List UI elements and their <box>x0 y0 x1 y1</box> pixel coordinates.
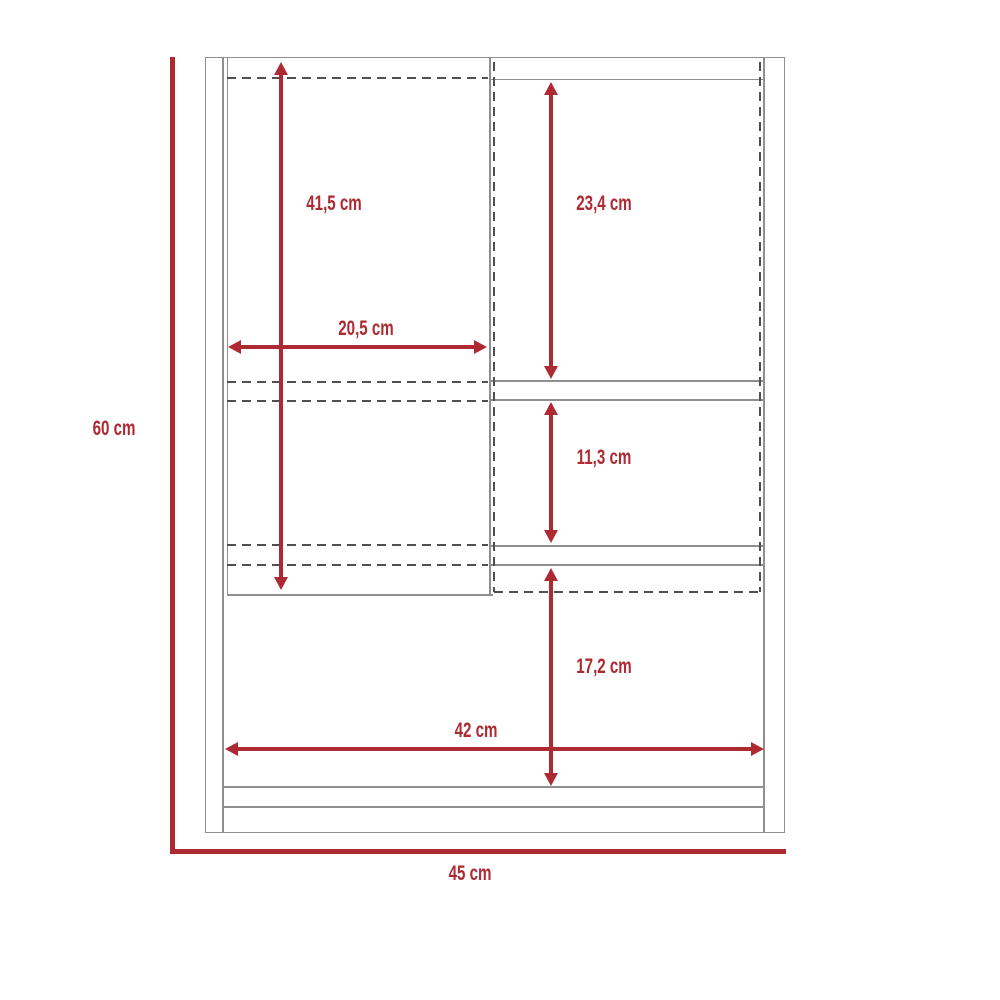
cabinet-left-panel-line <box>222 57 224 833</box>
hidden-left-shelf-2-bottom-line <box>227 564 488 566</box>
center-divider-line <box>489 57 491 595</box>
right-shelf-1-bottom-line <box>490 399 764 401</box>
hidden-right-door-left-edge-line <box>493 62 495 592</box>
dim-label-overall-height: 60 cm <box>93 417 136 441</box>
dim-arrow-door-width <box>239 345 477 349</box>
cabinet-right-panel-line <box>763 57 765 833</box>
hidden-left-shelf-2-top-line <box>227 544 488 546</box>
dim-label-lower-height: 17,2 cm <box>576 655 631 679</box>
hidden-right-door-bottom-edge-line <box>494 591 760 593</box>
dim-label-middle-right-height: 11,3 cm <box>577 446 632 470</box>
bottom-shelf-top-line <box>222 786 764 788</box>
hidden-door-top-edge-line <box>227 77 488 79</box>
arrowhead-down <box>544 366 558 379</box>
dim-arrow-door-height <box>279 73 283 579</box>
arrowhead-right <box>474 340 487 354</box>
dim-arrow-lower-height <box>549 579 553 775</box>
dim-label-door-width: 20,5 cm <box>338 317 393 341</box>
arrowhead-down <box>274 577 288 590</box>
right-shelf-2-bottom-line <box>490 564 764 566</box>
door-left-edge-line <box>227 58 229 595</box>
dim-label-upper-right-height: 23,4 cm <box>576 192 631 216</box>
arrowhead-down <box>544 530 558 543</box>
door-bottom-line <box>227 594 493 596</box>
hidden-right-door-right-edge-line <box>759 62 761 592</box>
overall-height-extension-line <box>170 57 175 854</box>
toe-kick-line <box>222 806 764 808</box>
hidden-left-shelf-1-bottom-line <box>227 400 488 402</box>
arrowhead-right <box>751 742 764 756</box>
dim-arrow-middle-right-height <box>549 413 553 532</box>
dim-arrow-upper-right-height <box>549 93 553 368</box>
arrowhead-down <box>544 773 558 786</box>
dim-arrow-interior-width <box>236 747 753 751</box>
dim-label-overall-width: 45 cm <box>449 862 492 886</box>
right-shelf-1-top-line <box>490 380 764 382</box>
dim-label-interior-width: 42 cm <box>455 719 498 743</box>
right-top-rail-line <box>490 79 764 81</box>
overall-width-extension-line <box>170 849 786 854</box>
dim-label-door-height: 41,5 cm <box>306 192 361 216</box>
cabinet-outer-frame <box>205 57 785 833</box>
cabinet-dimension-diagram: { "figure": { "type": "furniture-dimensi… <box>0 0 1000 1000</box>
hidden-left-shelf-1-top-line <box>227 381 488 383</box>
right-shelf-2-top-line <box>490 545 764 547</box>
